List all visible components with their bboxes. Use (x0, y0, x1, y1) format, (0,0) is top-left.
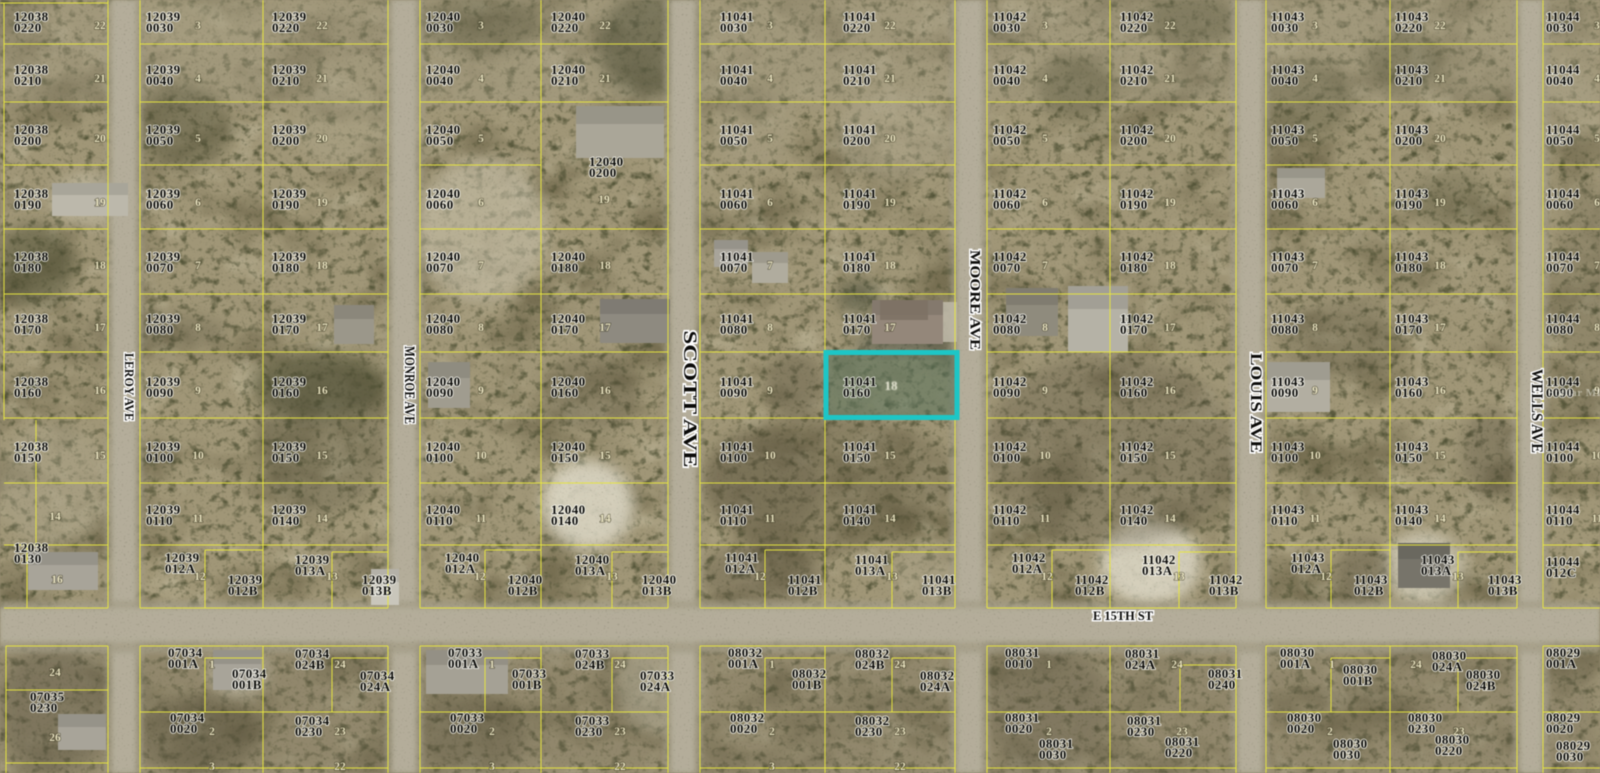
svg-text:24: 24 (614, 659, 626, 671)
svg-text:12: 12 (1320, 571, 1332, 583)
svg-text:24: 24 (1410, 659, 1422, 671)
svg-text:08030024A: 08030024A (1432, 648, 1467, 674)
svg-text:10: 10 (764, 450, 776, 462)
svg-text:2: 2 (489, 726, 495, 738)
svg-text:07033001A: 07033001A (448, 645, 483, 671)
svg-text:MONROE AVE: MONROE AVE (401, 346, 417, 424)
svg-text:8: 8 (478, 322, 484, 334)
svg-text:15: 15 (1434, 450, 1446, 462)
svg-text:23: 23 (334, 726, 346, 738)
svg-text:11042012B: 11042012B (1075, 572, 1109, 598)
svg-text:4: 4 (1042, 73, 1048, 85)
svg-text:11041013B: 11041013B (922, 572, 956, 598)
svg-text:7: 7 (1042, 260, 1048, 272)
svg-text:2: 2 (769, 726, 775, 738)
svg-text:22: 22 (1164, 20, 1176, 32)
svg-text:16: 16 (1434, 385, 1446, 397)
svg-text:17: 17 (1434, 322, 1446, 334)
svg-text:11: 11 (765, 513, 776, 525)
svg-text:5: 5 (767, 133, 773, 145)
svg-text:14: 14 (49, 511, 61, 523)
svg-text:12039013B: 12039013B (362, 572, 397, 598)
svg-text:6: 6 (1042, 197, 1048, 209)
svg-text:3: 3 (769, 761, 775, 773)
svg-text:13: 13 (326, 571, 338, 583)
svg-text:3: 3 (478, 20, 484, 32)
svg-text:21: 21 (599, 73, 611, 85)
svg-text:10: 10 (1309, 450, 1321, 462)
svg-text:08032024B: 08032024B (855, 646, 890, 672)
svg-text:14: 14 (1164, 513, 1176, 525)
svg-text:6: 6 (478, 197, 484, 209)
svg-text:13: 13 (1173, 571, 1185, 583)
svg-text:22: 22 (1434, 20, 1446, 32)
svg-text:10: 10 (1039, 450, 1051, 462)
svg-text:11042013B: 11042013B (1209, 572, 1243, 598)
svg-text:3: 3 (767, 20, 773, 32)
svg-text:3: 3 (1594, 20, 1600, 32)
svg-text:24: 24 (1171, 659, 1183, 671)
svg-text:11: 11 (1310, 513, 1321, 525)
svg-text:6: 6 (195, 197, 201, 209)
svg-text:17: 17 (1164, 322, 1176, 334)
svg-text:10: 10 (192, 450, 204, 462)
svg-text:17: 17 (94, 322, 106, 334)
svg-text:6: 6 (1312, 197, 1318, 209)
svg-text:8: 8 (1042, 322, 1048, 334)
svg-text:16: 16 (1164, 385, 1176, 397)
svg-text:14: 14 (1434, 513, 1446, 525)
svg-text:4: 4 (195, 73, 201, 85)
svg-text:19: 19 (316, 197, 328, 209)
svg-text:9: 9 (1042, 385, 1048, 397)
svg-text:21: 21 (884, 73, 896, 85)
svg-text:18: 18 (1434, 260, 1446, 272)
svg-text:12039012B: 12039012B (228, 572, 263, 598)
svg-text:3: 3 (1312, 20, 1318, 32)
svg-text:11042013A: 11042013A (1142, 552, 1176, 578)
svg-text:18: 18 (599, 260, 611, 272)
svg-text:23: 23 (614, 726, 626, 738)
svg-text:08032024A: 08032024A (920, 668, 955, 694)
svg-text:5: 5 (1594, 133, 1600, 145)
svg-text:12040013B: 12040013B (642, 572, 677, 598)
svg-text:8: 8 (1594, 322, 1600, 334)
svg-text:23: 23 (894, 726, 906, 738)
svg-text:1: 1 (489, 659, 495, 671)
svg-text:7: 7 (478, 260, 484, 272)
svg-text:11043013A: 11043013A (1421, 552, 1455, 578)
svg-text:10: 10 (475, 450, 487, 462)
svg-text:20: 20 (94, 133, 106, 145)
svg-text:07033024A: 07033024A (640, 668, 675, 694)
svg-text:4: 4 (478, 73, 484, 85)
svg-text:7: 7 (195, 260, 201, 272)
svg-text:12039013A: 12039013A (295, 552, 330, 578)
svg-text:12: 12 (754, 571, 766, 583)
svg-text:9: 9 (1312, 385, 1318, 397)
svg-text:MOORE AVE: MOORE AVE (967, 250, 983, 350)
svg-text:18: 18 (316, 260, 328, 272)
svg-text:3: 3 (195, 20, 201, 32)
svg-text:24: 24 (894, 659, 906, 671)
svg-text:14: 14 (599, 513, 611, 525)
svg-text:07034024B: 07034024B (295, 646, 330, 672)
svg-text:4: 4 (1312, 73, 1318, 85)
svg-text:22: 22 (316, 20, 328, 32)
svg-text:21: 21 (1434, 73, 1446, 85)
svg-text:12: 12 (474, 571, 486, 583)
svg-text:22: 22 (884, 20, 896, 32)
svg-text:12040013A: 12040013A (575, 552, 610, 578)
svg-text:5: 5 (195, 133, 201, 145)
svg-text:15: 15 (1164, 450, 1176, 462)
svg-text:13: 13 (886, 571, 898, 583)
svg-text:11: 11 (476, 513, 487, 525)
svg-text:22: 22 (599, 20, 611, 32)
svg-text:21: 21 (94, 73, 106, 85)
svg-text:16: 16 (51, 574, 63, 586)
svg-text:16: 16 (599, 385, 611, 397)
svg-text:1: 1 (1329, 659, 1335, 671)
svg-text:15: 15 (94, 450, 106, 462)
svg-text:19: 19 (94, 197, 106, 209)
svg-text:19: 19 (1164, 197, 1176, 209)
svg-text:15: 15 (884, 450, 896, 462)
svg-text:E 15TH ST: E 15TH ST (1093, 609, 1154, 623)
svg-text:07034001A: 07034001A (168, 645, 203, 671)
svg-text:11041013A: 11041013A (855, 552, 889, 578)
svg-text:08029001A: 08029001A (1546, 645, 1581, 671)
svg-text:9: 9 (195, 385, 201, 397)
svg-text:13: 13 (606, 571, 618, 583)
svg-text:9: 9 (478, 385, 484, 397)
svg-text:10: 10 (1591, 450, 1600, 462)
svg-text:7: 7 (1312, 260, 1318, 272)
svg-text:12040012B: 12040012B (508, 572, 543, 598)
svg-text:8: 8 (767, 322, 773, 334)
svg-text:1: 1 (209, 659, 215, 671)
svg-text:19: 19 (1434, 197, 1446, 209)
svg-text:16: 16 (316, 385, 328, 397)
svg-text:3: 3 (489, 761, 495, 773)
svg-text:12: 12 (194, 571, 206, 583)
svg-text:5: 5 (478, 133, 484, 145)
svg-text:6: 6 (767, 197, 773, 209)
svg-text:19: 19 (598, 194, 610, 206)
svg-text:5: 5 (1042, 133, 1048, 145)
svg-text:19: 19 (884, 197, 896, 209)
svg-text:8: 8 (1312, 322, 1318, 334)
svg-text:Stellar MLS: Stellar MLS (1548, 387, 1600, 399)
svg-text:8: 8 (195, 322, 201, 334)
svg-text:WELLS AVE: WELLS AVE (1528, 369, 1545, 453)
svg-text:7: 7 (1594, 260, 1600, 272)
svg-text:1: 1 (769, 659, 775, 671)
svg-text:20: 20 (884, 133, 896, 145)
svg-text:13: 13 (1452, 571, 1464, 583)
svg-text:08030001B: 08030001B (1343, 662, 1378, 688)
svg-text:18: 18 (94, 260, 106, 272)
svg-text:15: 15 (316, 450, 328, 462)
svg-text:6: 6 (1594, 197, 1600, 209)
svg-text:4: 4 (1594, 73, 1600, 85)
svg-text:7: 7 (767, 260, 773, 272)
svg-text:11043012B: 11043012B (1354, 572, 1388, 598)
svg-text:11: 11 (193, 513, 204, 525)
svg-text:11: 11 (1592, 513, 1600, 525)
svg-text:08030001A: 08030001A (1280, 645, 1315, 671)
svg-text:24: 24 (334, 659, 346, 671)
svg-text:17: 17 (599, 322, 611, 334)
svg-text:21: 21 (316, 73, 328, 85)
svg-text:9: 9 (767, 385, 773, 397)
svg-text:26: 26 (49, 732, 61, 744)
svg-text:08032001A: 08032001A (728, 645, 763, 671)
svg-text:16: 16 (94, 385, 106, 397)
svg-text:3: 3 (209, 761, 215, 773)
svg-text:22: 22 (894, 761, 906, 773)
svg-text:11044012C: 11044012C (1546, 554, 1580, 580)
svg-text:LEROY AVE: LEROY AVE (122, 353, 137, 421)
svg-text:SCOTT AVE: SCOTT AVE (679, 331, 700, 468)
svg-text:21: 21 (1164, 73, 1176, 85)
svg-text:20: 20 (316, 133, 328, 145)
svg-text:18: 18 (885, 378, 899, 393)
svg-text:18: 18 (884, 260, 896, 272)
svg-text:07033001B: 07033001B (512, 666, 547, 692)
svg-text:07034001B: 07034001B (232, 666, 267, 692)
svg-text:07033024B: 07033024B (575, 646, 610, 672)
svg-text:11: 11 (1040, 513, 1051, 525)
svg-text:20: 20 (1434, 133, 1446, 145)
svg-text:12: 12 (1041, 571, 1053, 583)
svg-text:08031024A: 08031024A (1125, 646, 1160, 672)
svg-text:4: 4 (767, 73, 773, 85)
svg-text:24: 24 (49, 667, 61, 679)
svg-text:15: 15 (599, 450, 611, 462)
svg-text:18: 18 (1164, 260, 1176, 272)
svg-text:14: 14 (316, 513, 328, 525)
svg-text:11043013B: 11043013B (1488, 572, 1522, 598)
svg-text:20: 20 (1164, 133, 1176, 145)
svg-text:11041012B: 11041012B (788, 572, 822, 598)
svg-text:22: 22 (94, 20, 106, 32)
svg-text:22: 22 (334, 761, 346, 773)
svg-text:14: 14 (884, 513, 896, 525)
svg-text:17: 17 (316, 322, 328, 334)
svg-text:LOUIS AVE: LOUIS AVE (1247, 353, 1264, 453)
svg-text:3: 3 (1042, 20, 1048, 32)
svg-text:5: 5 (1312, 133, 1318, 145)
svg-text:07034024A: 07034024A (360, 668, 395, 694)
svg-text:22: 22 (614, 761, 626, 773)
svg-text:08032001B: 08032001B (792, 666, 827, 692)
svg-text:08030024B: 08030024B (1466, 667, 1501, 693)
svg-text:2: 2 (209, 726, 215, 738)
svg-text:1: 1 (1046, 659, 1052, 671)
svg-text:17: 17 (884, 322, 896, 334)
